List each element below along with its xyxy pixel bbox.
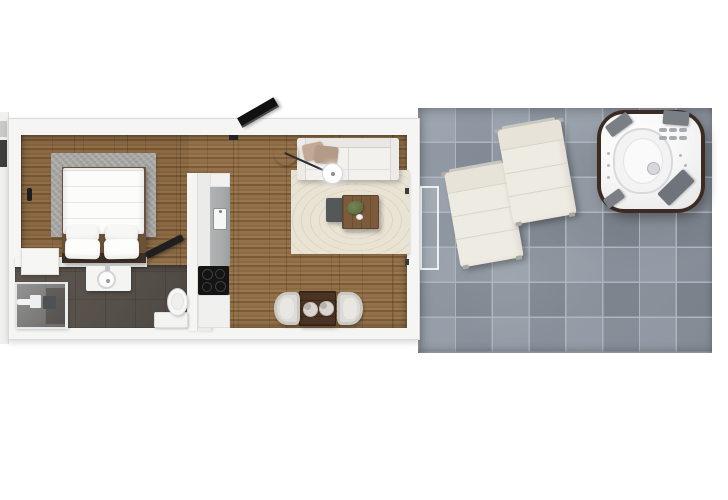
- bed-pillow: [65, 239, 100, 260]
- plant-dish: [356, 214, 363, 220]
- lounger-headrest: [497, 119, 564, 151]
- floor-plan-canvas: [0, 0, 728, 500]
- kitchen-tall-unit: [210, 173, 230, 187]
- sink-faucet: [219, 210, 222, 213]
- sofa-armrest-right: [390, 138, 399, 180]
- partition-wall-bathroom-kitchen: [187, 173, 197, 331]
- headrest-pad: [662, 110, 689, 126]
- potted-plant: [347, 201, 363, 214]
- dining-table: [299, 291, 336, 326]
- shower-mixer: [43, 296, 56, 309]
- burner: [202, 269, 213, 280]
- water-jet: [679, 154, 682, 157]
- dining-chair-right: [337, 292, 363, 325]
- toilet-tank: [154, 312, 188, 328]
- speaker-grill: [659, 128, 667, 132]
- basin-drain: [106, 279, 110, 283]
- speaker-grill: [669, 136, 677, 140]
- double-bed: [62, 167, 146, 263]
- tv-mount: [229, 135, 238, 140]
- speaker-grill: [679, 136, 687, 140]
- nightstand: [21, 248, 59, 275]
- lounger-crease: [509, 185, 572, 197]
- lounger-headrest: [444, 162, 511, 194]
- throw-pillow: [314, 145, 339, 165]
- water-jet: [607, 152, 610, 155]
- chair-seat: [343, 298, 357, 319]
- lounger-foot: [516, 255, 523, 260]
- lounger-foot: [515, 221, 522, 226]
- sofa-cushion-divider: [348, 147, 349, 180]
- dinner-plate: [319, 301, 334, 316]
- lamp-bulb: [331, 172, 335, 176]
- toilet-bowl: [167, 288, 188, 316]
- lounger-foot: [569, 212, 576, 217]
- window-frame-mark: [0, 140, 7, 167]
- shower-enclosure: [15, 282, 68, 329]
- vanity-cabinet: [86, 266, 131, 291]
- chair-seat: [280, 298, 294, 319]
- terrace-deck: [418, 108, 712, 353]
- water-jet: [607, 176, 610, 179]
- basin-faucet: [105, 264, 110, 271]
- entry-door-handle: [27, 188, 32, 201]
- hot-tub: [597, 110, 705, 213]
- toilet-seat: [171, 293, 184, 310]
- dinner-plate: [303, 302, 318, 317]
- bed-pillow: [104, 239, 139, 260]
- cooktop: [198, 266, 229, 295]
- shower-valve: [30, 295, 41, 308]
- sliding-door-handle-mark: [405, 188, 409, 194]
- floor-lamp-shade: [322, 163, 343, 184]
- wall-tv: [237, 97, 279, 128]
- plate-center: [320, 302, 327, 309]
- water-jet: [684, 164, 687, 167]
- kitchen-base-cabinet: [198, 295, 230, 328]
- lounger-foot: [462, 264, 469, 269]
- terrace-threshold: [420, 186, 439, 270]
- bed-duvet: [63, 168, 144, 234]
- apartment-shell: [8, 118, 420, 340]
- hot-tub-control-dome: [647, 162, 660, 175]
- coffee-table: [342, 195, 379, 229]
- burner: [215, 269, 225, 279]
- burner: [215, 281, 226, 292]
- speaker-grill: [659, 136, 667, 140]
- speaker-grill: [669, 128, 677, 132]
- vanity-basin: [97, 270, 116, 289]
- dining-chair-left: [274, 292, 300, 325]
- water-jet: [607, 164, 610, 167]
- lounger-crease: [505, 163, 568, 175]
- lounger-crease: [456, 228, 519, 240]
- window-frame-mark: [0, 121, 7, 137]
- plate-center: [304, 303, 311, 310]
- burner: [202, 282, 212, 292]
- sliding-door-handle-mark: [405, 259, 409, 265]
- sofa: [297, 138, 399, 180]
- lounger-crease: [452, 206, 515, 218]
- hot-tub-basin-contour: [623, 138, 663, 184]
- speaker-grill: [679, 128, 687, 132]
